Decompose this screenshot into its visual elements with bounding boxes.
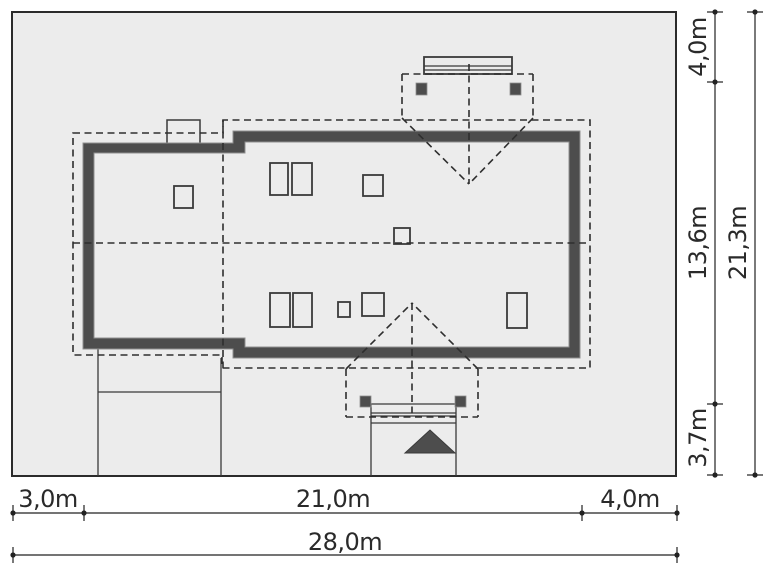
roof-window bbox=[394, 228, 410, 244]
porch-post bbox=[416, 83, 427, 95]
roof-window bbox=[293, 293, 312, 327]
site-plan-canvas: 3,0m 21,0m 4,0m 28,0m 4,0m 13,6m 3,7m 21… bbox=[0, 0, 770, 573]
porch-post bbox=[510, 83, 521, 95]
roof-window bbox=[292, 163, 312, 195]
entrance-steps-north bbox=[424, 57, 512, 74]
porch-post bbox=[360, 396, 371, 407]
roof-window bbox=[507, 293, 527, 328]
roof-window bbox=[174, 186, 193, 208]
roof-window bbox=[270, 163, 288, 195]
dimension-line-right-segments: 4,0m 13,6m 3,7m bbox=[684, 9, 723, 477]
dim-label-bottom-setback: 3,7m bbox=[684, 408, 712, 468]
dim-label-house-depth: 13,6m bbox=[684, 206, 712, 280]
dim-label-left-setback: 3,0m bbox=[18, 485, 78, 513]
site-plan-drawing: 3,0m 21,0m 4,0m 28,0m 4,0m 13,6m 3,7m 21… bbox=[0, 0, 770, 573]
dimension-line-bottom-total: 28,0m bbox=[10, 528, 679, 563]
roof-window bbox=[338, 302, 350, 317]
roof-window bbox=[362, 293, 384, 316]
dim-label-house-width: 21,0m bbox=[296, 485, 370, 513]
porch-post bbox=[455, 396, 466, 407]
roof-window bbox=[270, 293, 290, 327]
dim-label-top-setback: 4,0m bbox=[684, 17, 712, 77]
dim-label-right-setback: 4,0m bbox=[600, 485, 660, 513]
roof-window bbox=[363, 175, 383, 196]
dim-label-total-width: 28,0m bbox=[308, 528, 382, 556]
dim-label-total-depth: 21,3m bbox=[724, 206, 752, 280]
dimension-line-right-total: 21,3m bbox=[724, 9, 763, 477]
dimension-line-bottom-segments: 3,0m 21,0m 4,0m bbox=[10, 485, 679, 521]
